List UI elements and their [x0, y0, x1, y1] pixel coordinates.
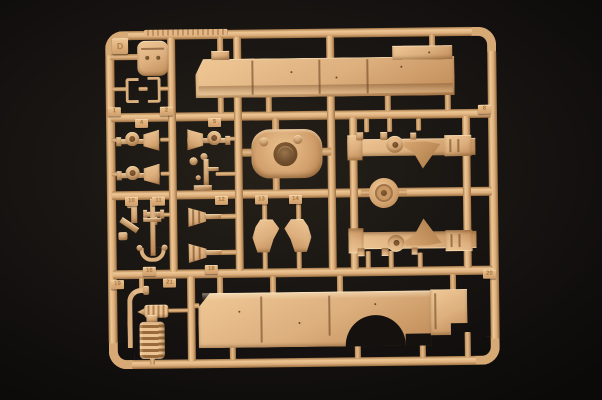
- part-number-tag: 21: [163, 279, 176, 288]
- axle-knob: [380, 132, 387, 140]
- spring-clip-right-part: [147, 77, 160, 103]
- fitting-arm: [208, 167, 219, 171]
- frame-rail-bottom: [132, 356, 476, 369]
- axle-knob: [358, 248, 365, 256]
- sprue-gate: [398, 190, 407, 195]
- fitting-knob: [189, 157, 197, 165]
- sprue-gate: [242, 149, 251, 157]
- part-number-tag: 2: [160, 107, 173, 116]
- sprue-gate: [220, 250, 237, 255]
- hub-hole: [381, 190, 387, 196]
- chassis-rail-bottom-part: [198, 288, 470, 351]
- boss: [259, 137, 268, 146]
- bore-ring: [277, 146, 293, 162]
- coil-spring-part: [138, 315, 167, 360]
- sprue-gate: [218, 96, 224, 113]
- sprue-gate: [273, 176, 280, 190]
- part-number-tag: 14: [289, 195, 302, 204]
- fitting-post: [203, 159, 208, 185]
- hook-crossbar: [143, 218, 161, 222]
- panel-line: [434, 293, 436, 329]
- sprue-gate: [113, 87, 127, 91]
- part-number-tag: 11: [152, 197, 165, 206]
- horn-part-1: [188, 207, 221, 227]
- chassis-rail-top-part: [195, 45, 456, 98]
- block-slot: [450, 234, 452, 247]
- rivet-dot: [335, 77, 337, 79]
- block-slot: [457, 139, 459, 152]
- sprue-gate: [445, 93, 451, 110]
- seat-part: [137, 41, 168, 76]
- horn-stem: [206, 250, 222, 255]
- rivet-dot: [298, 322, 300, 324]
- seat-hole: [156, 56, 160, 60]
- part-number-tag: 1: [108, 107, 121, 116]
- axle-hole: [392, 142, 398, 148]
- chassis-tab: [211, 51, 229, 60]
- chassis-undercut: [406, 333, 432, 345]
- fitting-foot: [194, 185, 212, 190]
- axle-hole: [393, 240, 399, 246]
- part-number-tag: 4: [135, 119, 148, 128]
- horn-rib: [192, 209, 194, 225]
- part-number-tag: 16: [143, 267, 156, 276]
- axle-knob: [382, 248, 389, 256]
- part-number-tag: 19: [111, 280, 124, 289]
- sprue-gate: [297, 251, 302, 269]
- sprue-gate: [385, 94, 391, 111]
- runner-vertical-bottom-divider: [187, 276, 196, 361]
- horn-rib: [198, 211, 200, 223]
- embossed-brand-ridge: [144, 29, 228, 36]
- rivet-dot: [400, 66, 402, 68]
- bracket-wedge: [187, 129, 203, 150]
- sprue-gate: [219, 214, 236, 219]
- bracket-tip: [117, 171, 122, 180]
- axle-knob: [412, 248, 418, 255]
- sprue-gate: [263, 251, 268, 269]
- horn-stem: [205, 214, 221, 219]
- axle-assembly-upper-part: [347, 122, 476, 170]
- part-number-tag: 18: [205, 265, 218, 274]
- rivet-dot: [238, 311, 240, 313]
- bracket-hole: [211, 135, 217, 141]
- axle-knob: [410, 133, 416, 140]
- bracket-hole: [130, 170, 136, 176]
- panel-line: [318, 60, 320, 94]
- hook-tip: [162, 245, 168, 251]
- mount-bracket-part-1: [116, 127, 161, 155]
- spring-clip-left-part: [125, 78, 138, 103]
- seat-groove: [141, 48, 164, 50]
- block-slot: [449, 139, 451, 152]
- sprue-gate: [160, 138, 169, 142]
- chassis-step: [392, 45, 452, 60]
- horn-cone: [189, 243, 207, 263]
- horn-cone: [188, 207, 206, 227]
- bracket-wedge: [144, 164, 160, 185]
- wedge-part-right: [284, 219, 311, 252]
- wheel-hub-part: [369, 178, 399, 208]
- frame-corner-bottom-right: [474, 337, 500, 365]
- part-number-tag: 12: [215, 196, 228, 205]
- sprue-gate: [139, 87, 148, 91]
- part-number-tag: 20: [483, 270, 496, 279]
- block-slot: [458, 234, 460, 247]
- runner-vertical-1: [167, 38, 178, 272]
- horn-part-2: [189, 243, 222, 263]
- coil-body: [139, 322, 164, 359]
- tags-layer: 1245810111213141618192120: [0, 0, 600, 4]
- horn-rib: [199, 247, 201, 259]
- tow-hook-part: [134, 199, 167, 264]
- mount-bracket-part-2: [117, 161, 162, 189]
- seat-hole: [145, 56, 149, 60]
- hook-tip: [137, 245, 143, 251]
- pipe-end-nub: [143, 286, 149, 295]
- rivet-dot: [290, 71, 292, 73]
- bracket-tip: [225, 136, 230, 145]
- mount-bracket-part-3: [185, 126, 230, 154]
- sprue-gate: [266, 95, 272, 112]
- sprue-photo: D 1245810111213141618192120: [0, 0, 602, 400]
- boss: [293, 135, 302, 144]
- sprue-gate: [110, 54, 138, 60]
- part-number-tag: 8: [478, 105, 491, 114]
- transfer-case-part: [251, 129, 323, 179]
- fitting-knob: [196, 175, 201, 180]
- horn-rib: [193, 245, 195, 261]
- sprue-gate: [160, 87, 169, 91]
- wedge-part-left: [252, 219, 279, 252]
- axle-knob: [356, 132, 363, 140]
- sprue-frame: D 1245810111213141618192120: [0, 0, 602, 400]
- sprue-gate: [161, 172, 170, 176]
- frame-corner-top-right: [470, 27, 496, 53]
- panel-line: [251, 61, 253, 95]
- bracket-hole: [129, 136, 135, 142]
- rivet-dot: [428, 51, 430, 53]
- part-number-tag: 5: [208, 118, 221, 127]
- rivet-dot: [374, 303, 376, 305]
- panel-line: [366, 59, 368, 93]
- bracket-wedge: [143, 130, 159, 151]
- axle-assembly-lower-part: [348, 218, 477, 266]
- sprue-gate: [322, 148, 331, 156]
- small-fitting-part: [188, 153, 218, 193]
- bracket-tip: [116, 137, 121, 146]
- sprue-letter-tag: D: [112, 38, 128, 54]
- part-number-tag: 13: [255, 195, 268, 204]
- part-number-tag: 10: [125, 197, 138, 206]
- bracket-foot: [118, 232, 127, 240]
